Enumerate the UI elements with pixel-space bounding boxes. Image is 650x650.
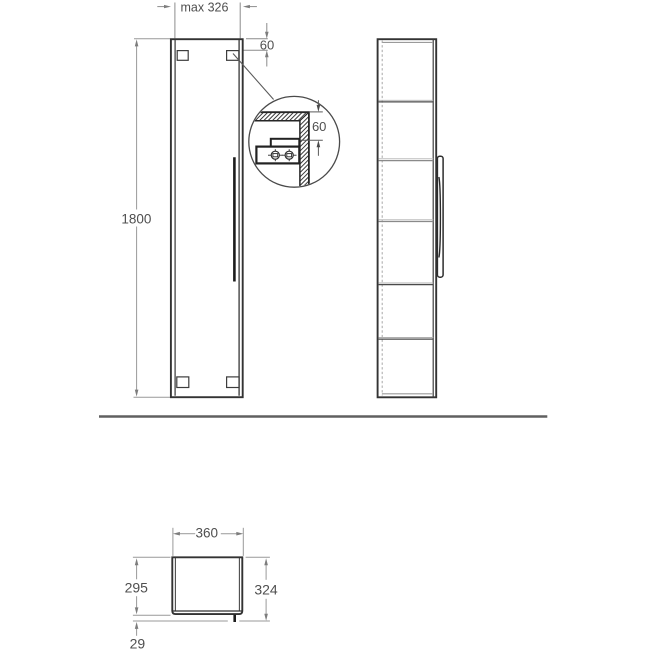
svg-text:1800: 1800 [121,212,151,227]
svg-text:60: 60 [260,38,274,53]
svg-text:360: 360 [196,525,219,540]
svg-text:295: 295 [125,579,149,595]
svg-text:max 326: max 326 [181,0,229,14]
svg-text:324: 324 [254,581,278,597]
svg-text:29: 29 [130,636,146,650]
svg-text:60: 60 [312,119,326,134]
